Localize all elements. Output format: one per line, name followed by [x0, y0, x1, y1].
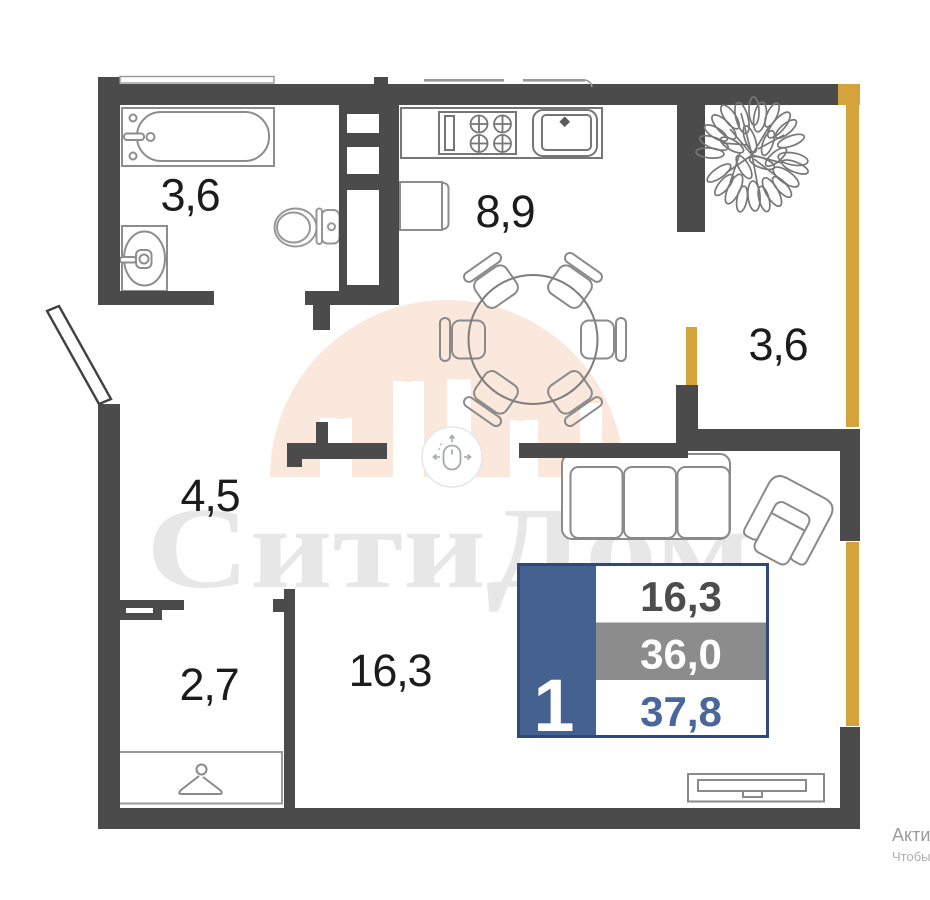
svg-text:3,6: 3,6: [749, 319, 808, 370]
svg-text:16,3: 16,3: [349, 645, 432, 696]
svg-text:2,7: 2,7: [180, 659, 239, 710]
svg-text:4,5: 4,5: [181, 470, 240, 521]
svg-text:36,0: 36,0: [640, 631, 722, 678]
svg-text:8,9: 8,9: [476, 186, 535, 237]
svg-text:Чтобы: Чтобы: [892, 849, 930, 864]
svg-text:1: 1: [533, 664, 574, 747]
svg-text:37,8: 37,8: [640, 688, 722, 735]
svg-text:Актив: Актив: [892, 825, 930, 845]
svg-text:3,6: 3,6: [161, 170, 220, 221]
svg-text:16,3: 16,3: [640, 573, 722, 620]
